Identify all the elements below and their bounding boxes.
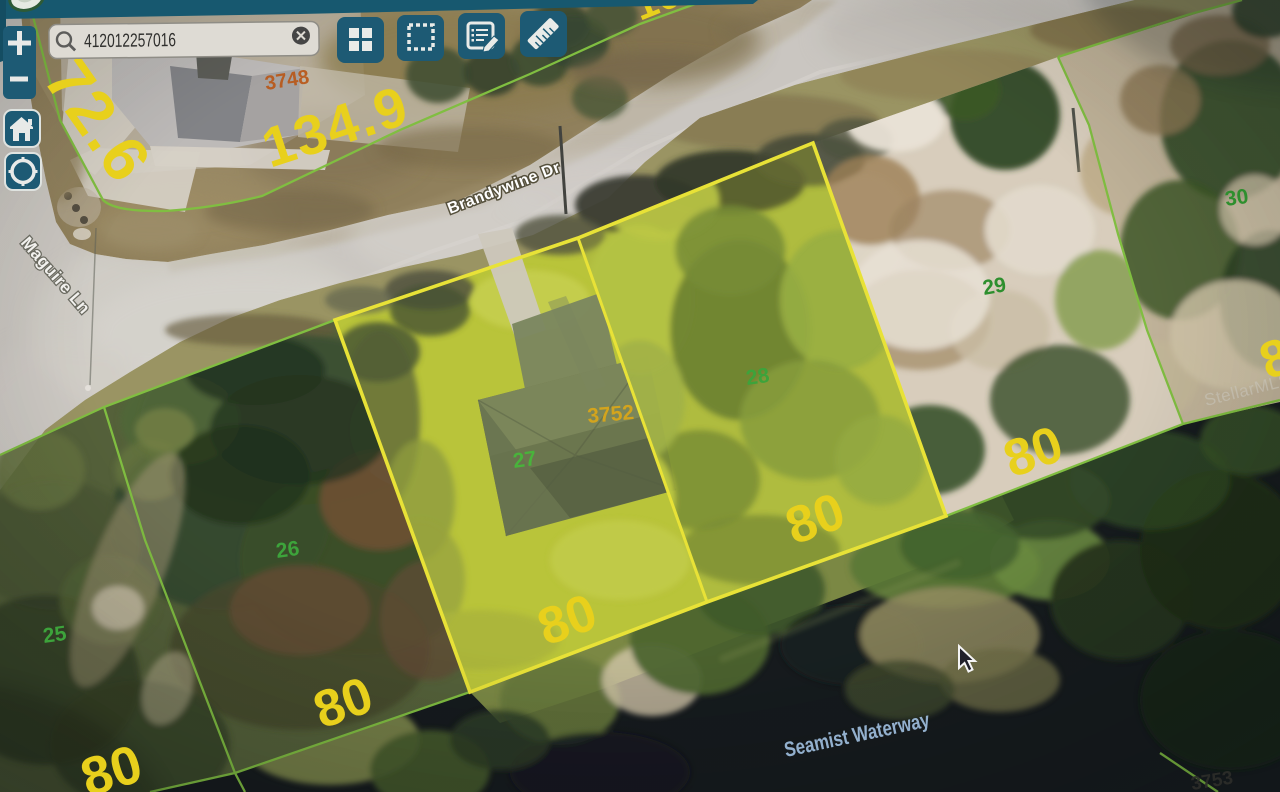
svg-text:3752: 3752 [586, 401, 635, 428]
svg-text:25: 25 [41, 622, 68, 648]
svg-text:26: 26 [274, 537, 300, 563]
svg-text:412012257016: 412012257016 [84, 30, 176, 52]
svg-text:30: 30 [1223, 185, 1249, 211]
svg-text:27: 27 [511, 447, 537, 473]
svg-text:29: 29 [981, 273, 1008, 300]
svg-text:28: 28 [744, 364, 771, 390]
